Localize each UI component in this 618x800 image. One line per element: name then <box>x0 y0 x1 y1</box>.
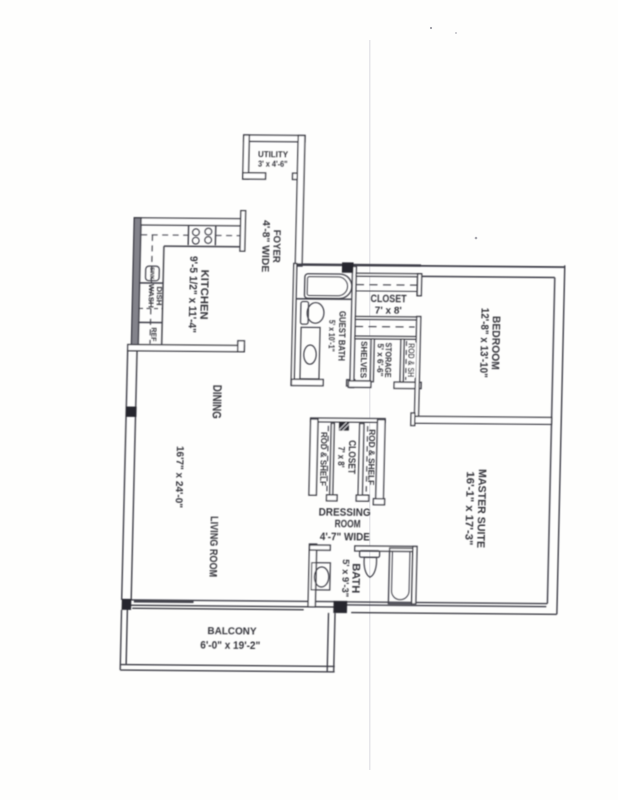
svg-text:DRESSING: DRESSING <box>318 507 370 519</box>
svg-text:9'-5 1/2" x 11'-4": 9'-5 1/2" x 11'-4" <box>185 256 199 333</box>
svg-text:5' x 10'-1": 5' x 10'-1" <box>327 320 338 352</box>
svg-text:WASH: WASH <box>146 284 156 308</box>
svg-text:REF: REF <box>149 327 158 341</box>
svg-text:6'-0" x 19'-2": 6'-0" x 19'-2" <box>200 640 260 653</box>
svg-text:GUEST BATH: GUEST BATH <box>336 311 348 361</box>
svg-text:BALCONY: BALCONY <box>207 625 256 637</box>
svg-text:5' x 6'-6": 5' x 6'-6" <box>375 343 385 376</box>
svg-text:ROOM: ROOM <box>335 518 361 530</box>
svg-text:ROD & SHELF: ROD & SHELF <box>318 432 329 486</box>
svg-text:ROD & SH: ROD & SH <box>406 343 416 377</box>
svg-text:CLOSET: CLOSET <box>370 293 407 305</box>
svg-text:4'-8" WIDE: 4'-8" WIDE <box>259 220 271 272</box>
svg-text:16'-1" x 17'-3": 16'-1" x 17'-3" <box>462 471 476 545</box>
svg-text:7' x 8': 7' x 8' <box>375 306 402 317</box>
svg-text:5' x 9'-3": 5' x 9'-3" <box>340 559 351 597</box>
svg-text:3' x 4'-6": 3' x 4'-6" <box>258 159 288 168</box>
svg-text:4'-7" WIDE: 4'-7" WIDE <box>320 531 370 543</box>
svg-text:UTILITY: UTILITY <box>258 149 289 159</box>
svg-text:DINING: DINING <box>209 385 222 419</box>
svg-text:FOYER: FOYER <box>270 230 282 264</box>
svg-text:SINK: SINK <box>148 267 154 280</box>
svg-text:7' x 8': 7' x 8' <box>335 446 346 467</box>
svg-text:ROD & SHELF: ROD & SHELF <box>366 429 377 485</box>
svg-text:SHELVES: SHELVES <box>358 341 369 378</box>
svg-text:LIVING ROOM: LIVING ROOM <box>206 516 219 577</box>
svg-text:16'7" x 24'-0": 16'7" x 24'-0" <box>173 446 185 508</box>
svg-text:12'-8" x 13'-10": 12'-8" x 13'-10" <box>477 308 491 378</box>
